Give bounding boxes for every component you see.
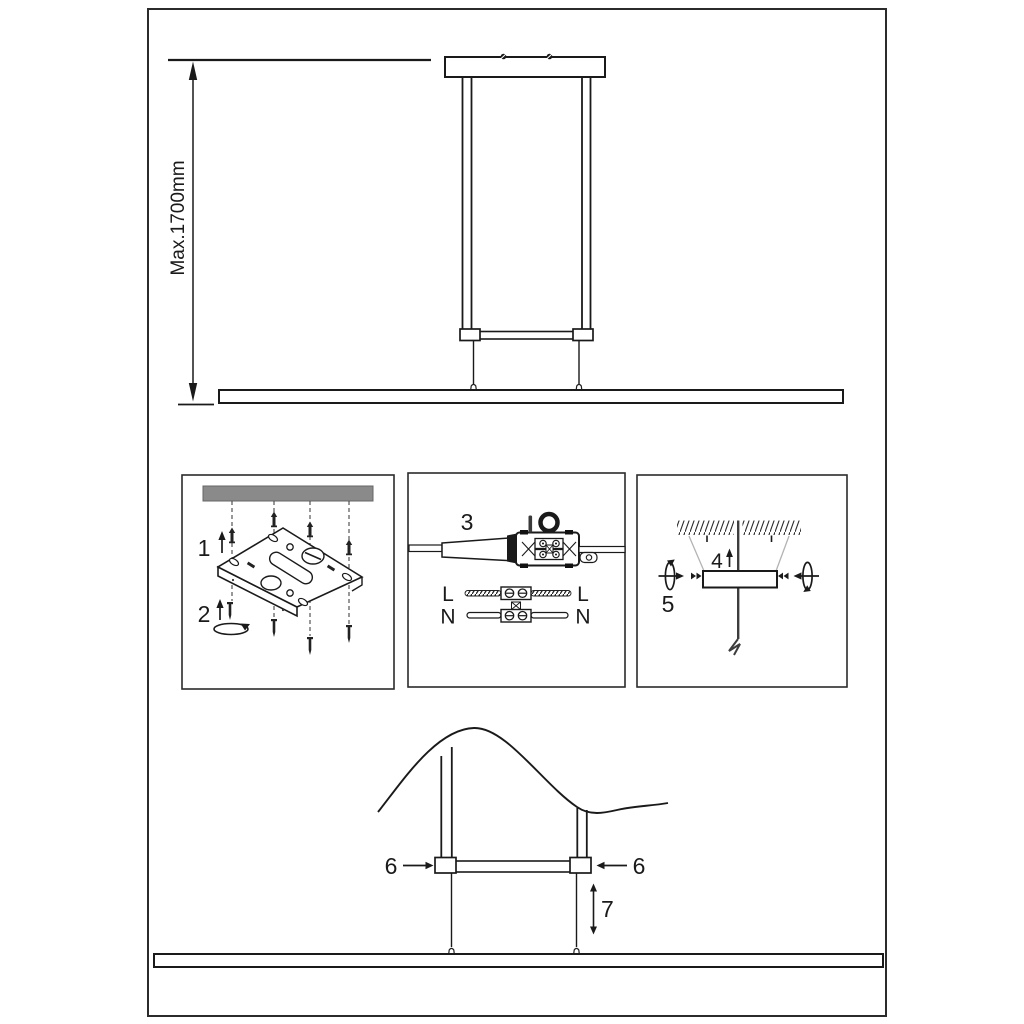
neutral-wire-left <box>467 613 501 619</box>
step-7-label: 7 <box>601 896 614 922</box>
ceiling-slab <box>203 486 373 501</box>
connector-pin <box>529 516 533 533</box>
panel-2-border <box>408 473 625 687</box>
adjuster-crossbar <box>455 861 571 872</box>
step-2-label: 2 <box>198 601 211 627</box>
panel-1-mounting-plate: 1 2 <box>182 475 394 689</box>
cable-lock-right <box>570 858 591 874</box>
panel-3-canopy-fixing: 4 5 <box>637 475 847 687</box>
crossbar-end-cap-left <box>460 329 480 341</box>
step-4-label: 4 <box>711 550 723 573</box>
max-height-label: Max.1700mm <box>168 160 189 275</box>
lamp-bar <box>219 390 843 403</box>
plate-hole <box>261 576 281 590</box>
step-6-label-left: 6 <box>385 853 398 879</box>
instruction-sheet: Max.1700mm <box>0 0 1024 1024</box>
neutral-label-left: N <box>440 606 455 629</box>
step-1-label: 1 <box>198 535 211 561</box>
step-3-label: 3 <box>461 509 474 535</box>
live-wire-right <box>531 591 571 597</box>
step-5-label: 5 <box>662 591 675 617</box>
live-wire-left <box>465 591 501 597</box>
canopy-body <box>703 571 777 588</box>
neutral-wire-right <box>531 613 568 619</box>
step-6-label-right: 6 <box>633 853 646 879</box>
panel-2-wiring: 3 <box>408 473 625 687</box>
cable-lock-left <box>435 858 456 874</box>
ceiling-canopy <box>445 57 605 77</box>
neutral-label-right: N <box>575 606 590 629</box>
live-label-left: L <box>442 583 454 606</box>
lamp-bar-bottom <box>154 954 883 967</box>
live-label-right: L <box>577 583 589 606</box>
installation-diagram: Max.1700mm <box>0 0 1024 1024</box>
crossbar-end-cap-right <box>573 329 593 341</box>
